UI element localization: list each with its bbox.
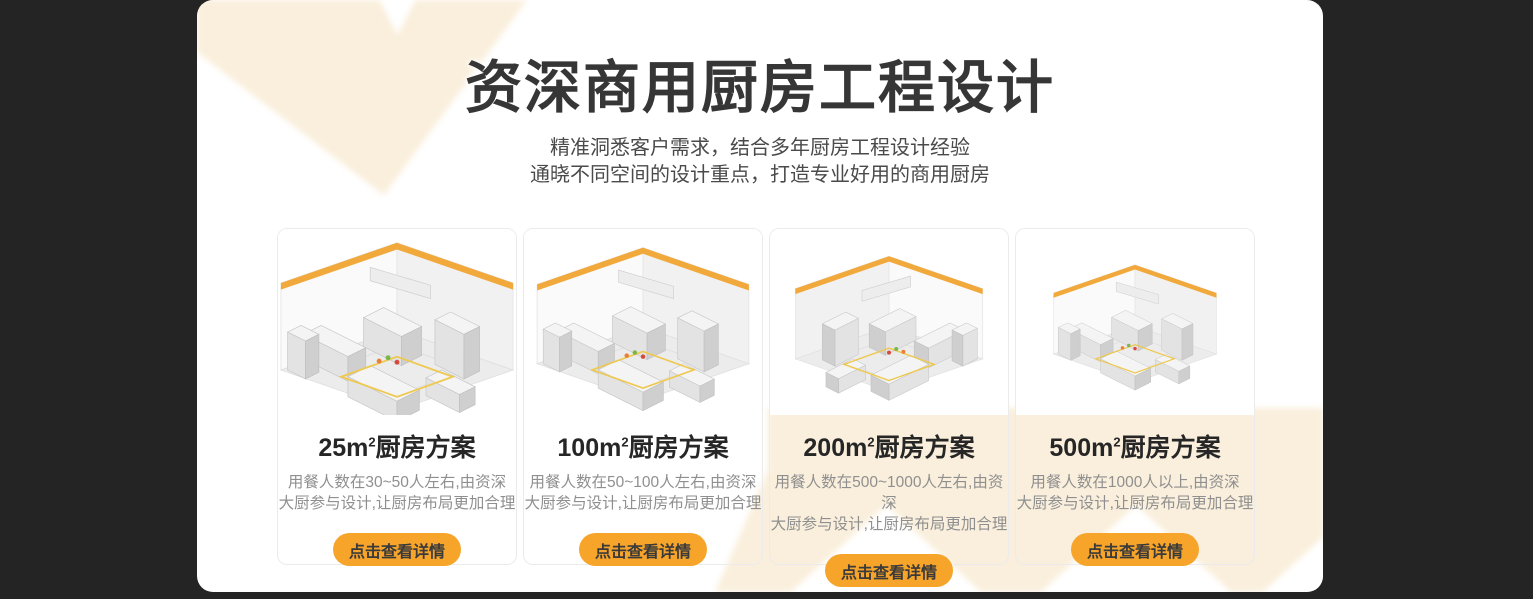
plan-card-title-suffix: 厨房方案 bbox=[875, 434, 975, 462]
description-line-1: 用餐人数在50~100人左右,由资深 bbox=[530, 474, 757, 491]
plan-card-title-suffix: 厨房方案 bbox=[1121, 434, 1221, 462]
plan-card-title: 500m2厨房方案 bbox=[1016, 428, 1254, 464]
plan-card-description: 用餐人数在1000人以上,由资深大厨参与设计,让厨房布局更加合理 bbox=[1016, 472, 1254, 514]
plan-card-title-sup: 2 bbox=[1113, 435, 1120, 450]
view-details-button[interactable]: 点击查看详情 bbox=[579, 533, 707, 566]
kitchen-render-image bbox=[524, 229, 762, 415]
plan-card-title-size: 25m bbox=[318, 434, 368, 462]
plan-card-title-sup: 2 bbox=[621, 435, 628, 450]
view-details-button[interactable]: 点击查看详情 bbox=[333, 533, 461, 566]
plan-card-title-suffix: 厨房方案 bbox=[376, 434, 476, 462]
page-title: 资深商用厨房工程设计 bbox=[197, 0, 1323, 122]
content-panel: 资深商用厨房工程设计 精准洞悉客户需求，结合多年厨房工程设计经验 通晓不同空间的… bbox=[197, 0, 1323, 592]
subtitle-line-1: 精准洞悉客户需求，结合多年厨房工程设计经验 bbox=[197, 135, 1323, 162]
kitchen-render-image bbox=[278, 229, 516, 415]
plan-card-500m2: 500m2厨房方案 用餐人数在1000人以上,由资深大厨参与设计,让厨房布局更加… bbox=[1015, 228, 1255, 565]
plan-card-title-suffix: 厨房方案 bbox=[629, 434, 729, 462]
kitchen-render-image bbox=[1016, 229, 1254, 415]
plan-card-25m2: 25m2厨房方案 用餐人数在30~50人左右,由资深大厨参与设计,让厨房布局更加… bbox=[277, 228, 517, 565]
plan-card-title: 200m2厨房方案 bbox=[770, 428, 1008, 464]
description-line-2: 大厨参与设计,让厨房布局更加合理 bbox=[279, 495, 516, 512]
description-line-2: 大厨参与设计,让厨房布局更加合理 bbox=[771, 516, 1008, 533]
decor-white-chevron-3 bbox=[1263, 505, 1323, 592]
subtitle-line-2: 通晓不同空间的设计重点，打造专业好用的商用厨房 bbox=[197, 162, 1323, 189]
plan-card-title: 25m2厨房方案 bbox=[278, 428, 516, 464]
plan-card-title-sup: 2 bbox=[867, 435, 874, 450]
plan-card-title-size: 200m bbox=[803, 434, 867, 462]
plan-cards-row: 25m2厨房方案 用餐人数在30~50人左右,由资深大厨参与设计,让厨房布局更加… bbox=[277, 228, 1257, 565]
view-details-button[interactable]: 点击查看详情 bbox=[825, 554, 953, 587]
plan-card-description: 用餐人数在50~100人左右,由资深大厨参与设计,让厨房布局更加合理 bbox=[524, 472, 762, 514]
plan-card-title-size: 100m bbox=[557, 434, 621, 462]
section-header: 资深商用厨房工程设计 精准洞悉客户需求，结合多年厨房工程设计经验 通晓不同空间的… bbox=[197, 0, 1323, 189]
description-line-1: 用餐人数在500~1000人左右,由资深 bbox=[775, 474, 1004, 512]
kitchen-render-image bbox=[770, 229, 1008, 415]
view-details-button[interactable]: 点击查看详情 bbox=[1071, 533, 1199, 566]
description-line-2: 大厨参与设计,让厨房布局更加合理 bbox=[1017, 495, 1254, 512]
plan-card-title-sup: 2 bbox=[368, 435, 375, 450]
plan-card-description: 用餐人数在30~50人左右,由资深大厨参与设计,让厨房布局更加合理 bbox=[278, 472, 516, 514]
description-line-1: 用餐人数在1000人以上,由资深 bbox=[1030, 474, 1239, 491]
plan-card-title: 100m2厨房方案 bbox=[524, 428, 762, 464]
plan-card-100m2: 100m2厨房方案 用餐人数在50~100人左右,由资深大厨参与设计,让厨房布局… bbox=[523, 228, 763, 565]
description-line-1: 用餐人数在30~50人左右,由资深 bbox=[288, 474, 506, 491]
plan-card-title-size: 500m bbox=[1049, 434, 1113, 462]
plan-card-description: 用餐人数在500~1000人左右,由资深大厨参与设计,让厨房布局更加合理 bbox=[770, 472, 1008, 535]
plan-card-200m2: 200m2厨房方案 用餐人数在500~1000人左右,由资深大厨参与设计,让厨房… bbox=[769, 228, 1009, 565]
description-line-2: 大厨参与设计,让厨房布局更加合理 bbox=[525, 495, 762, 512]
